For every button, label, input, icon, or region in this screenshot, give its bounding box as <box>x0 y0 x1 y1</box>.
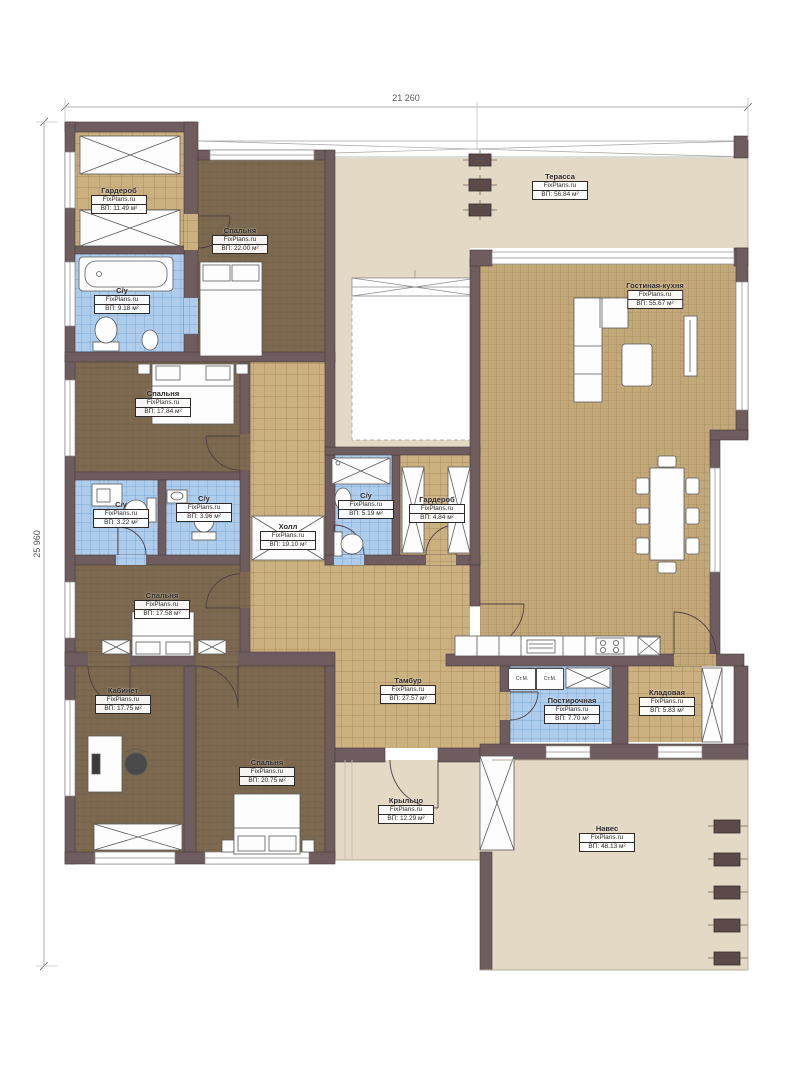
tv-unit <box>684 316 697 376</box>
washing-machine-label: Ст.М. <box>536 668 564 690</box>
bed-bedroom-1784 <box>138 364 248 424</box>
washing-machine-label: Ст.М. <box>508 668 536 690</box>
floor-plan-drawing <box>0 0 792 1080</box>
dimension-left: 25 960 <box>32 527 42 561</box>
bathtub <box>79 257 173 291</box>
bed-bedroom-22 <box>200 262 262 356</box>
floor-plan: 21 260 25 960 Гардероб FixPlans.ru ВП: 1… <box>0 0 792 1080</box>
bed-bedroom-1758 <box>132 612 194 656</box>
dimension-top: 21 260 <box>389 93 423 103</box>
patio-void <box>352 270 478 440</box>
coffee-table <box>622 344 652 386</box>
kitchen-counter <box>455 636 660 656</box>
bed-bedroom-2075 <box>222 794 314 854</box>
